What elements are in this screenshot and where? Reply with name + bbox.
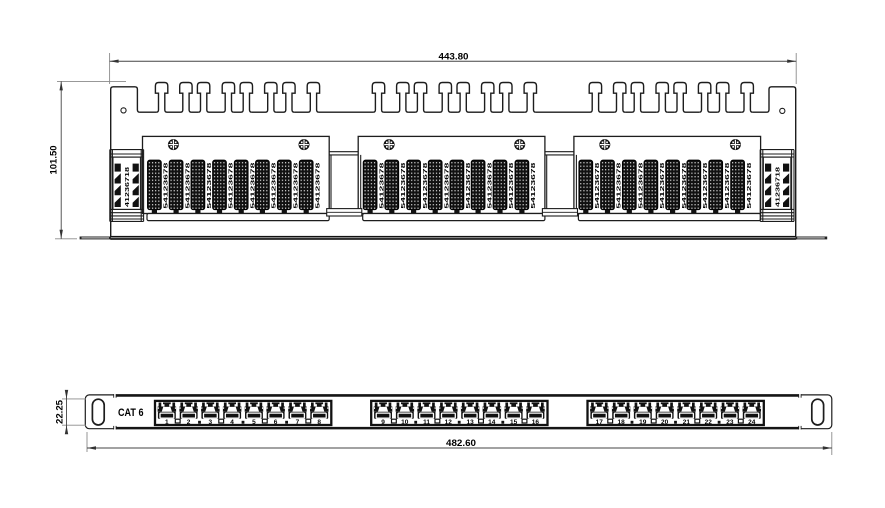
svg-text:54123678: 54123678 xyxy=(185,163,191,209)
svg-text:9: 9 xyxy=(381,419,385,426)
svg-text:54123678: 54123678 xyxy=(660,163,666,209)
svg-text:482.60: 482.60 xyxy=(446,438,476,449)
svg-text:54123678: 54123678 xyxy=(531,163,537,209)
svg-text:23: 23 xyxy=(726,419,734,426)
svg-text:5: 5 xyxy=(252,419,256,426)
svg-text:54123678: 54123678 xyxy=(164,163,170,209)
svg-text:10: 10 xyxy=(401,419,409,426)
svg-text:7: 7 xyxy=(296,419,300,426)
svg-text:54123678: 54123678 xyxy=(725,163,731,209)
svg-text:54123678: 54123678 xyxy=(294,163,300,209)
svg-text:22.25: 22.25 xyxy=(54,400,64,424)
svg-text:54123678: 54123678 xyxy=(379,163,385,209)
svg-text:101.50: 101.50 xyxy=(48,146,58,175)
svg-text:54123678: 54123678 xyxy=(487,163,493,209)
svg-text:41236718: 41236718 xyxy=(776,167,782,207)
svg-text:14: 14 xyxy=(488,419,496,426)
svg-text:54123678: 54123678 xyxy=(595,163,601,209)
svg-text:443.80: 443.80 xyxy=(439,51,469,62)
svg-text:54123678: 54123678 xyxy=(401,163,407,209)
svg-text:19: 19 xyxy=(639,419,647,426)
svg-text:54123678: 54123678 xyxy=(617,163,623,209)
svg-text:16: 16 xyxy=(532,419,540,426)
svg-text:22: 22 xyxy=(705,419,713,426)
svg-text:18: 18 xyxy=(617,419,625,426)
svg-text:CAT 6: CAT 6 xyxy=(118,407,144,419)
svg-text:54123678: 54123678 xyxy=(703,163,709,209)
svg-text:17: 17 xyxy=(596,419,604,426)
svg-text:11: 11 xyxy=(423,419,430,426)
svg-text:6: 6 xyxy=(274,419,278,426)
svg-text:13: 13 xyxy=(466,419,474,426)
svg-text:21: 21 xyxy=(683,419,691,426)
svg-text:41236718: 41236718 xyxy=(125,167,131,207)
svg-text:15: 15 xyxy=(510,419,518,426)
svg-text:1: 1 xyxy=(165,419,169,426)
svg-text:24: 24 xyxy=(748,419,756,426)
svg-text:2: 2 xyxy=(187,419,191,426)
svg-text:20: 20 xyxy=(661,419,669,426)
svg-text:54123678: 54123678 xyxy=(444,163,450,209)
svg-text:12: 12 xyxy=(445,419,453,426)
svg-text:3: 3 xyxy=(208,419,212,426)
svg-text:8: 8 xyxy=(317,419,321,426)
svg-text:54123678: 54123678 xyxy=(315,163,321,209)
svg-text:54123678: 54123678 xyxy=(747,163,753,209)
svg-text:54123678: 54123678 xyxy=(509,163,515,209)
svg-text:54123678: 54123678 xyxy=(229,163,235,209)
svg-text:54123678: 54123678 xyxy=(272,163,278,209)
svg-text:4: 4 xyxy=(230,419,234,426)
